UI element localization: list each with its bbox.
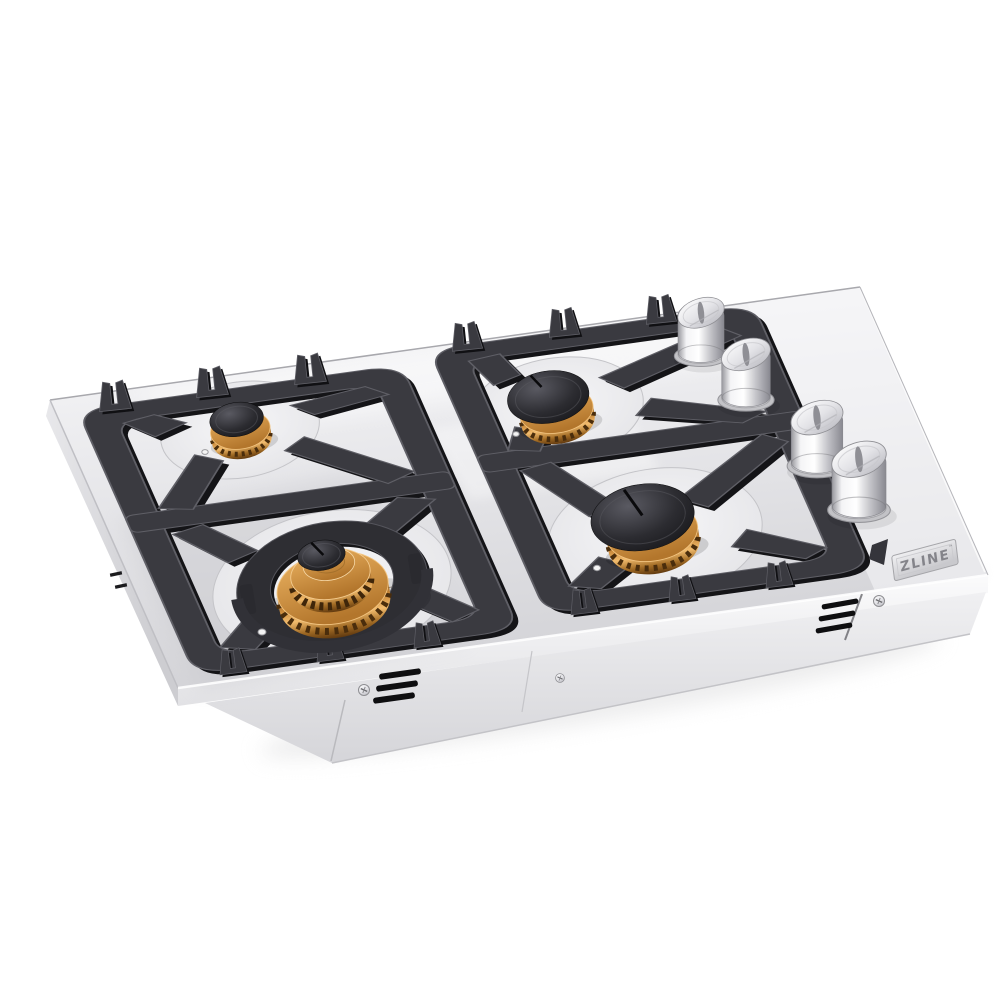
cooktop-photo: ZLINE ™ [0, 0, 1000, 1000]
screw [874, 596, 885, 607]
screw [359, 685, 370, 696]
screw [556, 674, 565, 683]
badge-trademark: ™ [948, 544, 954, 551]
product-photo: ZLINE ™ [0, 0, 1000, 1000]
